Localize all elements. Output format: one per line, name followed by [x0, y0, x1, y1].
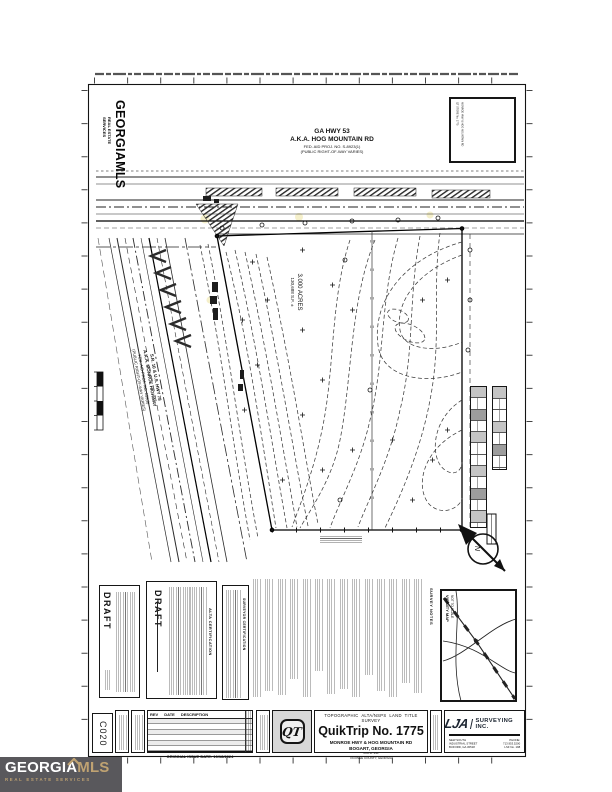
- north-label: N: [473, 546, 480, 552]
- gmls-roof-icon: [67, 758, 81, 766]
- firm-logo-bar: [470, 719, 474, 729]
- col-desc: DESCRIPTION: [181, 712, 208, 718]
- seal-box: QT STORE No. 1775 MONROE HWY & HOG MOUNT…: [449, 97, 516, 163]
- gmls-footer-band: GEORGIAMLS REAL ESTATE SERVICES: [0, 757, 122, 792]
- project-gmd: G.M.D. 241: [329, 751, 413, 755]
- lane-chevrons: [151, 250, 191, 347]
- adjoiner-label: [320, 536, 362, 544]
- firm-addr2: BUFORD, GA 30518: [449, 745, 480, 749]
- scan-highlights: [201, 212, 434, 304]
- survey-symbols: [203, 196, 472, 503]
- revision-table: REV DATE DESCRIPTION ORIGINAL ISSUE DATE…: [147, 710, 253, 753]
- qt-logo-box: QT: [272, 710, 312, 753]
- road-name: GA HWY 53: [252, 128, 412, 136]
- draft-stamp: DRAFT: [153, 590, 163, 628]
- survey-notes-heading: SURVEY NOTES: [429, 588, 434, 625]
- alta-certification-panel: ALTA CERTIFICATION DRAFT: [146, 581, 217, 699]
- revision-header: REV DATE DESCRIPTION: [148, 711, 252, 719]
- cell-microtext: [260, 715, 268, 750]
- vicinity-scale: NOT TO SCALE: [450, 595, 454, 618]
- alta-heading: ALTA CERTIFICATION: [208, 608, 213, 656]
- road-aka: A.K.A. HOG MOUNTAIN RD: [252, 136, 412, 144]
- draft-seal-panel: DRAFT: [99, 585, 140, 698]
- gmls-logo: GEORGIAMLS REAL ESTATE SERVICES: [5, 760, 110, 782]
- gmls-watermark-brand: GEORGIAMLS: [113, 100, 127, 188]
- firm-box: LJA SURVEYING INC. NEW SOUTH INDUSTRIAL …: [444, 710, 525, 753]
- parcel-sf: 130,688 S.F. ±: [289, 252, 294, 332]
- parcel-boundary: [215, 227, 470, 532]
- cell-microtext: [135, 715, 143, 750]
- survey-type: TOPOGRAPHIC ALTA/NSPS LAND TITLE SURVEY: [315, 713, 427, 723]
- hog-mountain-road-lines: [96, 171, 524, 247]
- title-strip-cell-3: [256, 710, 270, 753]
- col-rev: REV: [150, 712, 158, 718]
- seal-note-1: QT STORE No. 1775: [456, 102, 459, 125]
- survey-notes-columns: [253, 579, 429, 700]
- firm-phone: PHONE: 713.953.5200: [501, 738, 520, 745]
- firm-contact: PHONE: 713.953.5200 LSF No. 198: [501, 738, 520, 749]
- title-strip-cell-4: [430, 710, 442, 753]
- graphic-scale: [94, 372, 103, 430]
- gmls-mls: MLS: [77, 759, 109, 776]
- firm-lsf: LSF No. 198: [501, 745, 520, 749]
- firm-address: NEW SOUTH INDUSTRIAL STREET BUFORD, GA 3…: [449, 738, 480, 749]
- surveyor-certification-panel: SURVEYOR CERTIFICATION: [222, 585, 249, 700]
- surveyor-heading: SURVEYOR CERTIFICATION: [242, 598, 246, 650]
- parcel-acres: 3.000 ACRES: [295, 252, 302, 332]
- gmls-tagline: REAL ESTATE SERVICES: [5, 778, 110, 782]
- project-county: OCONEE COUNTY, GEORGIA: [329, 756, 413, 760]
- draft-stamp: DRAFT: [102, 592, 112, 630]
- panel-date: [105, 670, 111, 690]
- firm-name: LJA: [443, 716, 469, 731]
- title-strip-cell-1: [115, 710, 129, 753]
- project-city: BOGART, GEORGIA: [315, 746, 427, 751]
- legend-table-2: [492, 386, 507, 470]
- survey-sheet: N GEORGIAMLS REAL ESTATE SERVICES QT STO…: [0, 0, 612, 792]
- firm-addr1: NEW SOUTH INDUSTRIAL STREET: [449, 738, 480, 745]
- title-block: TOPOGRAPHIC ALTA/NSPS LAND TITLE SURVEY …: [314, 710, 428, 753]
- road-row: (PUBLIC RIGHT-OF-WAY VARIES): [252, 149, 412, 154]
- signature-line: [157, 602, 158, 672]
- firm-logo: LJA SURVEYING INC.: [445, 716, 524, 731]
- firm-details: NEW SOUTH INDUSTRIAL STREET BUFORD, GA 3…: [445, 738, 524, 754]
- parcel-area-label: 3.000 ACRES 130,688 S.F. ±: [289, 252, 302, 332]
- project-address: MONROE HWY & HOG MOUNTAIN RD: [315, 740, 427, 745]
- title-strip-cell-2: [131, 710, 145, 753]
- sheet-number: C020: [98, 721, 108, 747]
- firm-suffix: SURVEYING INC.: [475, 718, 524, 730]
- panel-microtext: [169, 587, 207, 695]
- col-date: DATE: [164, 712, 175, 718]
- original-issue-date: ORIGINAL ISSUE DATE: 10/18/2024: [148, 751, 252, 762]
- cell-microtext: [433, 715, 440, 750]
- project-title: QuikTrip No. 1775: [315, 724, 427, 738]
- vicinity-map: VICINITY MAP NOT TO SCALE: [440, 589, 517, 702]
- cell-microtext: [119, 715, 127, 750]
- sheet-number-box: C020: [92, 713, 113, 753]
- qt-logo: QT: [280, 719, 305, 744]
- firm-rule: [449, 734, 520, 736]
- seal-note-2: MONROE HWY & HOG MOUNTAIN RD: [461, 102, 464, 146]
- panel-microtext: [226, 590, 242, 698]
- gmls-watermark-sub: REAL ESTATE SERVICES: [102, 117, 111, 161]
- revision-side-strip: [245, 711, 252, 752]
- legend-table-1: [470, 386, 487, 528]
- panel-microtext: [116, 592, 136, 692]
- road-label-hog-mountain: GA HWY 53 A.K.A. HOG MOUNTAIN RD FED. AI…: [252, 128, 412, 154]
- qt-monogram: QT: [281, 725, 302, 739]
